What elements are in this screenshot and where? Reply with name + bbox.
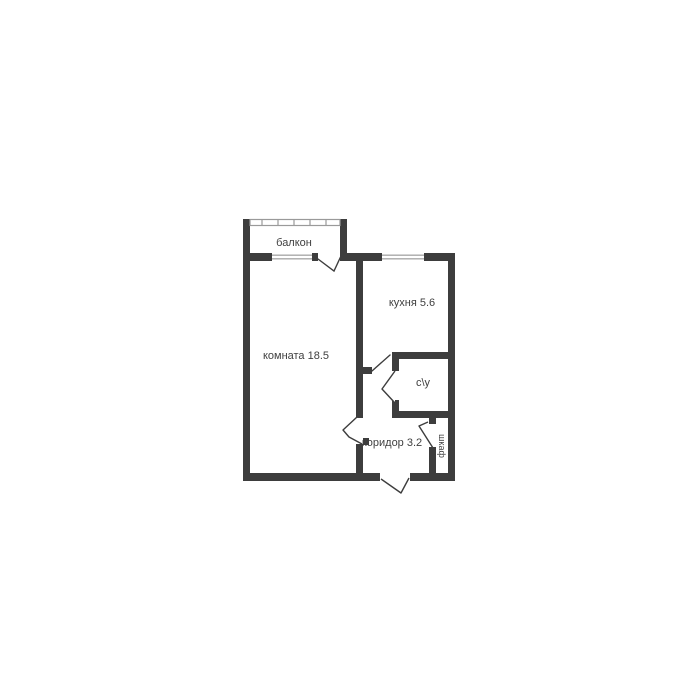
bathroom-door-leaf — [382, 371, 395, 403]
wall-closet-left-lower — [429, 447, 436, 473]
wall-balcony-right — [340, 219, 347, 261]
wall-window-post — [312, 253, 318, 261]
wall-outer-right — [448, 253, 455, 481]
floorplan-canvas: балкон комната 18.5 кухня 5.6 с\у коридо… — [0, 0, 700, 700]
wall-closet-left-upper — [429, 418, 436, 424]
room-label-kitchen: кухня 5.6 — [389, 297, 435, 309]
room-label-bathroom: с\у — [416, 377, 431, 389]
room-label-closet: шкаф — [437, 434, 447, 458]
wall-bottom-right — [410, 473, 455, 481]
room-label-corridor: коридор 3.2 — [362, 437, 422, 449]
floorplan-drawing: балкон комната 18.5 кухня 5.6 с\у коридо… — [0, 0, 700, 700]
wall-bathroom-top — [392, 352, 455, 359]
wall-bathroom-left-upper — [392, 352, 399, 371]
wall-kitchen-door-stub — [363, 367, 372, 374]
living-room-door-leaf — [343, 417, 362, 444]
wall-top-kitchen-left — [347, 253, 382, 261]
wall-divider-lower — [356, 444, 363, 481]
wall-top-room-left — [243, 253, 272, 261]
entrance-door-leaf — [381, 478, 409, 493]
room-label-balcony: балкон — [276, 237, 312, 249]
window-living-room — [272, 253, 312, 261]
room-label-living-room: комната 18.5 — [263, 350, 329, 362]
balcony-door-swing — [318, 256, 341, 271]
window-kitchen — [382, 253, 424, 261]
kitchen-door-swing — [372, 355, 390, 371]
wall-bathroom-bottom — [392, 411, 455, 418]
wall-divider-upper — [356, 253, 363, 418]
